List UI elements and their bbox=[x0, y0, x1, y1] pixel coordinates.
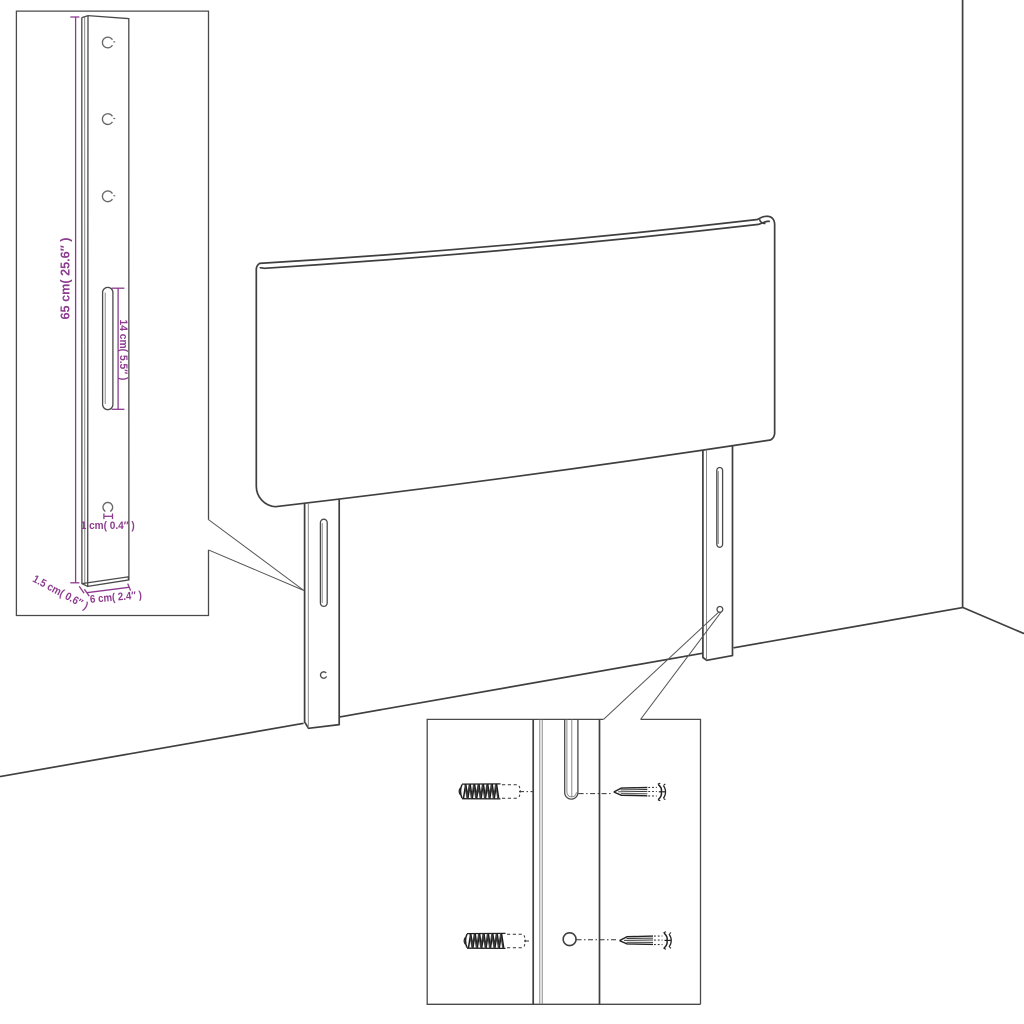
svg-text:65 cm( 25.6″ ): 65 cm( 25.6″ ) bbox=[57, 238, 72, 320]
svg-text:1 cm( 0.4″ ): 1 cm( 0.4″ ) bbox=[81, 520, 135, 532]
svg-text:14 cm( 5.5″ ): 14 cm( 5.5″ ) bbox=[117, 320, 129, 381]
